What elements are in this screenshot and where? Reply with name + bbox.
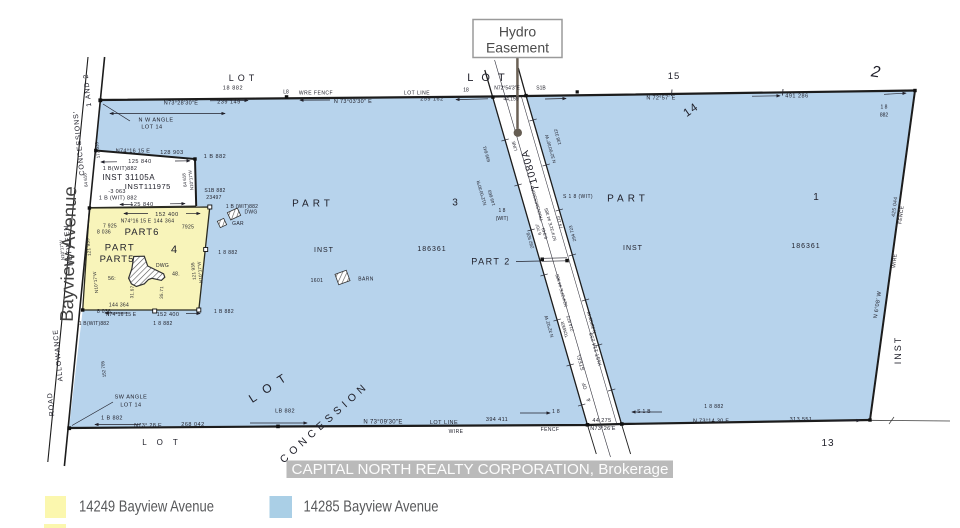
svg-text:35.71: 35.71 bbox=[159, 286, 164, 299]
svg-text:Bayview Avenue: Bayview Avenue bbox=[56, 186, 81, 322]
svg-text:INST: INST bbox=[314, 247, 334, 254]
svg-text:23497: 23497 bbox=[206, 195, 221, 201]
svg-text:LB 882: LB 882 bbox=[275, 409, 295, 415]
svg-text:INST111975: INST111975 bbox=[125, 182, 171, 191]
svg-text:186361: 186361 bbox=[791, 243, 820, 250]
svg-text:LOT LINE: LOT LINE bbox=[430, 420, 458, 426]
svg-text:4: 4 bbox=[171, 244, 177, 256]
svg-text:S1B 882: S1B 882 bbox=[204, 188, 225, 194]
svg-text:3: 3 bbox=[452, 198, 458, 209]
svg-text:N73° 28 E: N73° 28 E bbox=[134, 423, 162, 429]
svg-text:239 149: 239 149 bbox=[217, 100, 240, 106]
svg-text:SW ANGLE: SW ANGLE bbox=[115, 395, 148, 401]
svg-text:259 162: 259 162 bbox=[420, 97, 443, 103]
svg-text:N W ANGLE: N W ANGLE bbox=[138, 118, 173, 124]
svg-text:DWG: DWG bbox=[156, 263, 169, 269]
svg-text:INST: INST bbox=[893, 336, 903, 365]
svg-text:(WIT): (WIT) bbox=[496, 216, 509, 222]
svg-text:S 1 B: S 1 B bbox=[637, 409, 651, 415]
svg-text:INST: INST bbox=[623, 245, 643, 252]
svg-text:1 8 882: 1 8 882 bbox=[218, 250, 237, 256]
svg-text:N73°28′30″E: N73°28′30″E bbox=[164, 101, 199, 107]
svg-text:128 903: 128 903 bbox=[160, 150, 183, 156]
svg-text:152 400: 152 400 bbox=[157, 312, 180, 318]
svg-text:1601: 1601 bbox=[311, 278, 324, 284]
svg-text:PART6: PART6 bbox=[125, 227, 160, 238]
svg-text:186361: 186361 bbox=[417, 246, 446, 253]
svg-text:44,159: 44,159 bbox=[503, 97, 519, 103]
svg-text:1 B(WIT)882: 1 B(WIT)882 bbox=[103, 166, 137, 172]
svg-text:S 1 8 (WIT): S 1 8 (WIT) bbox=[563, 194, 593, 200]
svg-text:Easement: Easement bbox=[486, 40, 549, 56]
svg-text:8 036: 8 036 bbox=[97, 230, 111, 236]
svg-text:LOT 14: LOT 14 bbox=[120, 403, 141, 409]
svg-text:31.07: 31.07 bbox=[129, 285, 134, 298]
svg-text:N 73°14.30 F: N 73°14.30 F bbox=[693, 419, 729, 425]
svg-text:1 B 882: 1 B 882 bbox=[204, 154, 226, 160]
svg-text:N74°16 15 E: N74°16 15 E bbox=[116, 149, 151, 155]
svg-text:44 275: 44 275 bbox=[592, 418, 611, 424]
svg-text:48.: 48. bbox=[172, 272, 180, 278]
svg-text:PART: PART bbox=[607, 194, 649, 205]
svg-text:N73°26′E: N73°26′E bbox=[590, 426, 616, 432]
svg-text:N 73°09′30″E: N 73°09′30″E bbox=[363, 420, 402, 426]
svg-text:152 400: 152 400 bbox=[155, 212, 178, 218]
svg-text:2: 2 bbox=[869, 63, 881, 81]
svg-text:L O T: L O T bbox=[142, 438, 182, 447]
svg-text:125 840: 125 840 bbox=[128, 159, 151, 165]
svg-text:N 72°57′ E: N 72°57′ E bbox=[646, 96, 675, 102]
svg-text:7925: 7925 bbox=[182, 225, 194, 231]
svg-text:DWG: DWG bbox=[244, 210, 257, 216]
svg-text:18 882: 18 882 bbox=[223, 86, 243, 92]
svg-text:GAR: GAR bbox=[232, 221, 244, 227]
svg-text:14285 Bayview Avenue: 14285 Bayview Avenue bbox=[304, 499, 439, 516]
svg-text:LOT 14: LOT 14 bbox=[141, 125, 162, 131]
svg-text:1 B (WIT) 882: 1 B (WIT) 882 bbox=[99, 196, 137, 202]
svg-text:L8: L8 bbox=[283, 90, 289, 96]
svg-text:LOT: LOT bbox=[467, 72, 512, 84]
svg-text:313 551: 313 551 bbox=[790, 417, 813, 423]
svg-text:1 8: 1 8 bbox=[499, 208, 506, 214]
svg-text:1 AND 2: 1 AND 2 bbox=[83, 73, 93, 107]
svg-text:-3 063: -3 063 bbox=[108, 189, 125, 195]
svg-text:N 73°03′30″ E: N 73°03′30″ E bbox=[334, 99, 372, 105]
svg-text:CAPITAL NORTH REALTY CORPORATI: CAPITAL NORTH REALTY CORPORATION, Broker… bbox=[292, 462, 669, 478]
svg-text:144 364: 144 364 bbox=[109, 303, 129, 309]
svg-text:1: 1 bbox=[813, 192, 819, 203]
svg-text:WIRE: WIRE bbox=[891, 253, 899, 268]
svg-text:13: 13 bbox=[821, 438, 834, 449]
svg-text:CONCESSIONS′: CONCESSIONS′ bbox=[73, 110, 87, 175]
svg-text:1 8: 1 8 bbox=[881, 105, 888, 111]
svg-text:N74°16 15 E: N74°16 15 E bbox=[121, 219, 152, 225]
svg-text:1 8: 1 8 bbox=[552, 409, 560, 415]
svg-text:1 B(WIT)882: 1 B(WIT)882 bbox=[79, 321, 110, 327]
svg-text:1 8 882: 1 8 882 bbox=[153, 321, 172, 327]
svg-text:56:: 56: bbox=[108, 276, 116, 282]
svg-text:PART 2: PART 2 bbox=[471, 257, 511, 267]
svg-text:WRE FENCF: WRE FENCF bbox=[299, 91, 333, 97]
svg-text:S1B: S1B bbox=[536, 86, 546, 92]
svg-text:LOT: LOT bbox=[229, 73, 259, 83]
svg-text:144 364: 144 364 bbox=[154, 219, 175, 225]
svg-text:N74°16 15 E: N74°16 15 E bbox=[106, 312, 137, 318]
svg-text:64 618: 64 618 bbox=[82, 173, 88, 188]
svg-text:1 B 882: 1 B 882 bbox=[101, 416, 123, 422]
svg-text:ALLOWANCE: ALLOWANCE bbox=[52, 329, 64, 382]
svg-text:125 840: 125 840 bbox=[130, 202, 153, 208]
svg-text:491 286: 491 286 bbox=[785, 94, 808, 100]
svg-text:18: 18 bbox=[463, 88, 469, 94]
svg-text:PART: PART bbox=[292, 199, 334, 210]
svg-text:1 8 882: 1 8 882 bbox=[704, 404, 723, 410]
svg-text:BARN: BARN bbox=[358, 277, 374, 283]
svg-text:882: 882 bbox=[880, 113, 889, 119]
svg-text:INST 31105A: INST 31105A bbox=[102, 173, 155, 182]
svg-text:N72°54′3″E: N72°54′3″E bbox=[494, 86, 520, 92]
svg-text:268 042: 268 042 bbox=[181, 422, 204, 428]
svg-text:14249 Bayview Avenue: 14249 Bayview Avenue bbox=[79, 499, 214, 516]
svg-text:394 411: 394 411 bbox=[486, 417, 508, 423]
svg-text:FENCF: FENCF bbox=[541, 427, 560, 433]
svg-text:PART5: PART5 bbox=[100, 254, 135, 265]
svg-text:LOT LINE: LOT LINE bbox=[404, 91, 430, 97]
svg-text:WIRE: WIRE bbox=[449, 429, 464, 435]
svg-text:1 B 882: 1 B 882 bbox=[214, 309, 234, 315]
svg-text:Hydro: Hydro bbox=[499, 24, 537, 40]
svg-text:15: 15 bbox=[668, 71, 681, 82]
svg-text:FENCE: FENCE bbox=[897, 205, 905, 224]
svg-text:PART: PART bbox=[105, 243, 135, 254]
